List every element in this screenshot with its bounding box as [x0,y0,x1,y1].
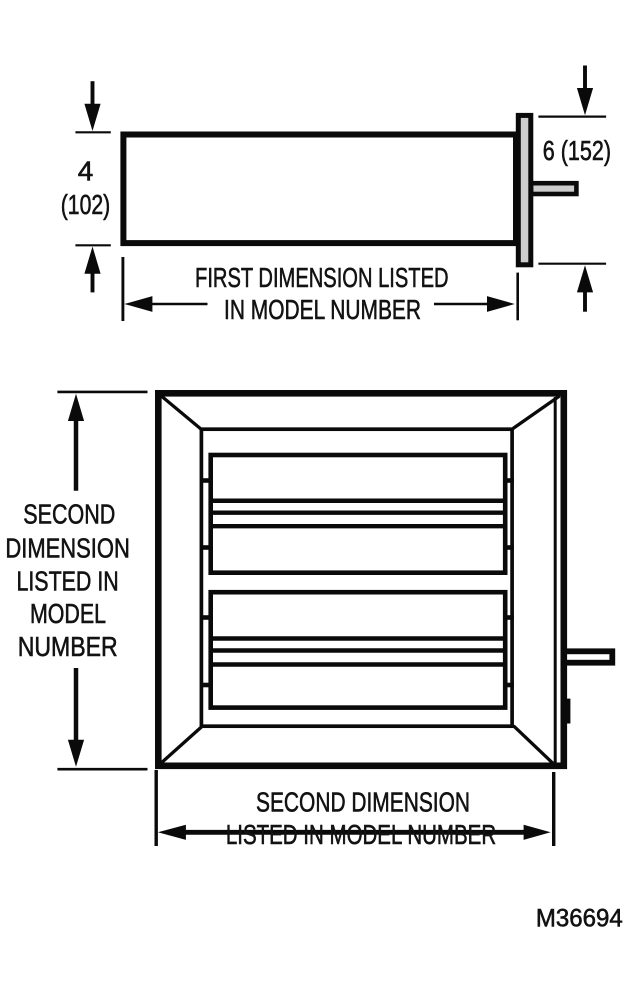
svg-text:IN MODEL NUMBER: IN MODEL NUMBER [224,294,421,325]
svg-text:MODEL: MODEL [30,598,106,629]
svg-text:LISTED IN MODEL NUMBER: LISTED IN MODEL NUMBER [226,819,496,850]
svg-text:6 (152): 6 (152) [543,135,611,166]
svg-text:DIMENSION: DIMENSION [5,533,130,564]
svg-text:M36694: M36694 [536,904,623,932]
svg-text:SECOND: SECOND [23,499,115,530]
svg-text:(102): (102) [61,189,111,220]
svg-text:LISTED IN: LISTED IN [16,565,118,596]
svg-text:FIRST DIMENSION LISTED: FIRST DIMENSION LISTED [195,262,449,293]
svg-text:SECOND DIMENSION: SECOND DIMENSION [256,786,470,817]
svg-text:4: 4 [78,155,94,186]
svg-text:NUMBER: NUMBER [18,631,118,662]
